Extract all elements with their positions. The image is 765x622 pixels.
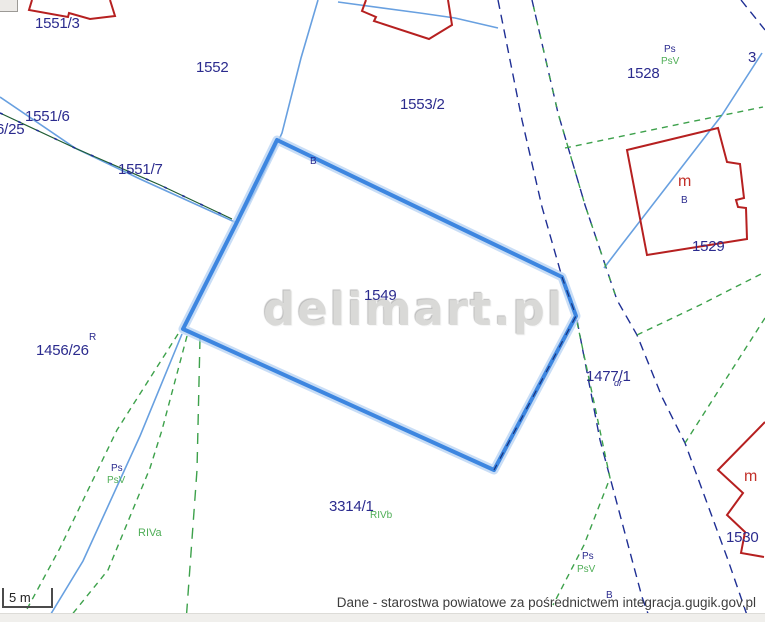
map-label-1477-1: 1477/1	[586, 369, 631, 384]
map-label-1456-26: 1456/26	[36, 343, 89, 358]
map-label-3: 3	[748, 50, 756, 65]
selected-parcel-outline[interactable]	[183, 140, 576, 470]
map-label-b: B	[681, 196, 688, 206]
map-label-dr: dr	[614, 379, 622, 388]
map-label-ps: Ps	[664, 45, 676, 55]
map-corner-control[interactable]	[0, 0, 18, 12]
map-label-rivb: RIVb	[370, 511, 392, 521]
cadastral-boundary-dashed	[498, 0, 765, 622]
map-label-riva: RIVa	[138, 528, 162, 539]
map-label-psv: PsV	[107, 476, 125, 486]
scale-bar: 5 m	[2, 588, 50, 607]
cadastral-map-viewport[interactable]: delimart.pl	[0, 0, 765, 622]
landuse-dark-boundary	[0, 113, 232, 219]
map-label-m: m	[678, 174, 691, 190]
map-label-1551-6: 1551/6	[25, 109, 70, 124]
map-vector-layer	[0, 0, 765, 622]
map-label-1528: 1528	[627, 66, 660, 81]
attribution-text: Dane - starostwa powiatowe za pośrednict…	[337, 595, 756, 610]
map-label-ps: Ps	[111, 464, 123, 474]
map-label-1552: 1552	[196, 60, 229, 75]
building-outlines	[29, 0, 765, 557]
landuse-boundary-lines	[20, 0, 765, 622]
map-label-1549: 1549	[364, 288, 397, 303]
map-label-r: R	[89, 333, 96, 343]
map-label-1529: 1529	[692, 239, 725, 254]
map-label-b: B	[310, 157, 317, 167]
map-label-1553-2: 1553/2	[400, 97, 445, 112]
map-label-1551-3: 1551/3	[35, 16, 80, 31]
map-label-1530: 1530	[726, 530, 759, 545]
map-label-3314-1: 3314/1	[329, 499, 374, 514]
map-label-ps: Ps	[582, 552, 594, 562]
map-label-m: m	[744, 469, 757, 485]
bottom-status-strip	[0, 613, 765, 622]
map-label-1551-7: 1551/7	[118, 162, 163, 177]
parcel-boundary-lines	[0, 0, 762, 622]
map-label-6-25: 6/25	[0, 122, 24, 137]
map-label-psv: PsV	[577, 565, 595, 575]
map-label-psv: PsV	[661, 57, 679, 67]
scale-bar-label: 5 m	[9, 590, 31, 605]
